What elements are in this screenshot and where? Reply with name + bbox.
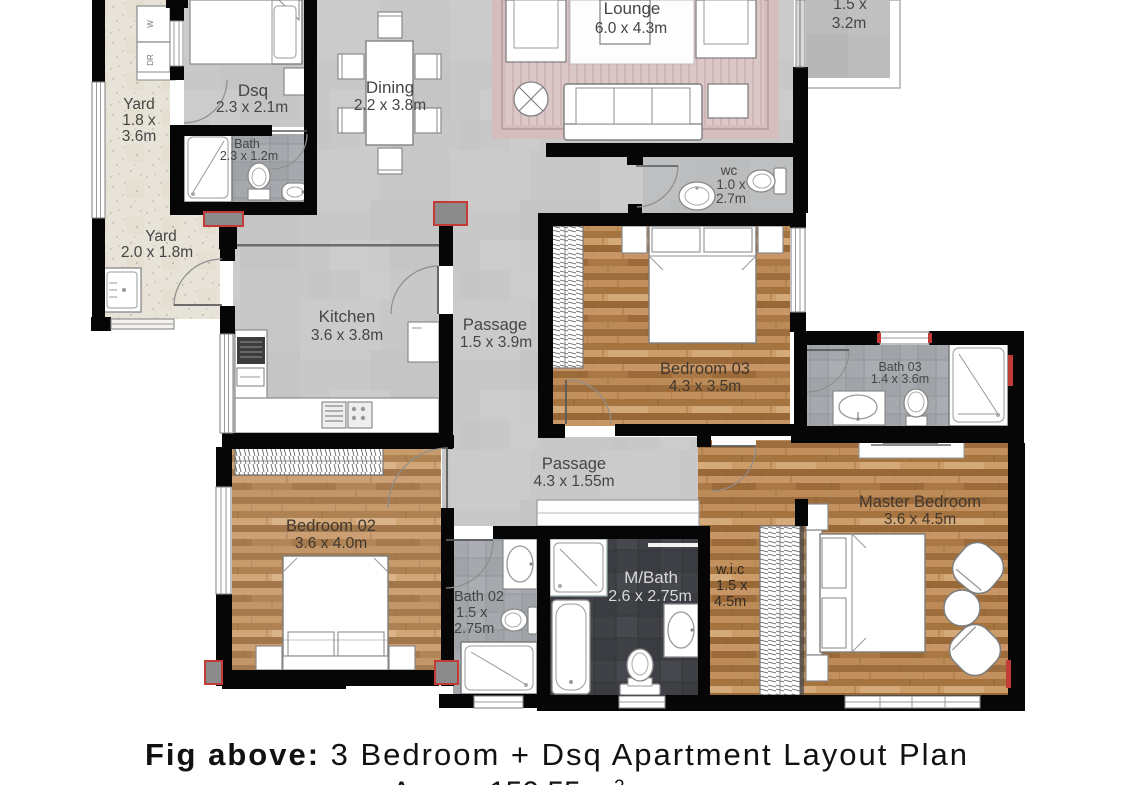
svg-text:Bedroom 03: Bedroom 03 bbox=[660, 360, 750, 378]
svg-text:1.5 x: 1.5 x bbox=[833, 0, 867, 13]
svg-text:2.0 x 1.8m: 2.0 x 1.8m bbox=[121, 244, 193, 261]
svg-text:3.6 x 4.5m: 3.6 x 4.5m bbox=[884, 511, 956, 528]
svg-text:Lounge: Lounge bbox=[604, 0, 661, 18]
svg-text:2.75m: 2.75m bbox=[454, 621, 494, 637]
svg-text:M/Bath: M/Bath bbox=[624, 568, 678, 587]
svg-text:2.7m: 2.7m bbox=[716, 191, 746, 206]
svg-text:2.6 x 2.75m: 2.6 x 2.75m bbox=[608, 588, 692, 605]
svg-text:3.6 x 4.0m: 3.6 x 4.0m bbox=[295, 535, 367, 552]
svg-text:1.8 x: 1.8 x bbox=[122, 112, 156, 129]
svg-text:Fig above: 3 Bedroom + Dsq Apa: Fig above: 3 Bedroom + Dsq Apartment Lay… bbox=[145, 737, 969, 772]
svg-text:1.0 x: 1.0 x bbox=[716, 177, 746, 192]
svg-text:2.2 x 3.8m: 2.2 x 3.8m bbox=[354, 97, 426, 114]
svg-text:3.6 x 3.8m: 3.6 x 3.8m bbox=[311, 327, 383, 344]
svg-text:Yard: Yard bbox=[145, 228, 177, 245]
svg-text:4.5m: 4.5m bbox=[714, 594, 746, 610]
svg-text:Area = 150.55 m2: Area = 150.55 m2 bbox=[391, 776, 624, 785]
svg-text:W: W bbox=[146, 20, 155, 28]
svg-text:3.2m: 3.2m bbox=[832, 15, 866, 32]
svg-text:Passage: Passage bbox=[542, 455, 606, 473]
svg-text:w.i.c: w.i.c bbox=[715, 562, 744, 578]
svg-text:1.4 x 3.6m: 1.4 x 3.6m bbox=[871, 372, 929, 386]
svg-text:1.5 x 3.9m: 1.5 x 3.9m bbox=[460, 334, 532, 351]
svg-text:4.3 x 1.55m: 4.3 x 1.55m bbox=[534, 473, 615, 490]
svg-text:wc: wc bbox=[720, 163, 738, 178]
svg-text:4.3 x 3.5m: 4.3 x 3.5m bbox=[669, 378, 741, 395]
svg-text:Master Bedroom: Master Bedroom bbox=[859, 493, 981, 511]
svg-text:6.0 x 4.3m: 6.0 x 4.3m bbox=[595, 20, 667, 37]
svg-text:DR: DR bbox=[146, 54, 155, 66]
svg-text:Bedroom 02: Bedroom 02 bbox=[286, 517, 376, 535]
svg-text:2.3 x 1.2m: 2.3 x 1.2m bbox=[220, 149, 278, 163]
svg-text:Passage: Passage bbox=[463, 316, 527, 334]
svg-text:Dsq: Dsq bbox=[238, 81, 268, 100]
svg-text:2.3 x 2.1m: 2.3 x 2.1m bbox=[216, 99, 288, 116]
svg-text:3.6m: 3.6m bbox=[122, 128, 156, 145]
svg-text:1.5 x: 1.5 x bbox=[456, 605, 488, 621]
svg-text:Kitchen: Kitchen bbox=[319, 307, 376, 326]
svg-text:Dining: Dining bbox=[366, 78, 414, 97]
svg-text:1.5 x: 1.5 x bbox=[716, 578, 748, 594]
svg-text:Bath 02: Bath 02 bbox=[454, 589, 504, 605]
svg-text:Yard: Yard bbox=[123, 96, 155, 113]
